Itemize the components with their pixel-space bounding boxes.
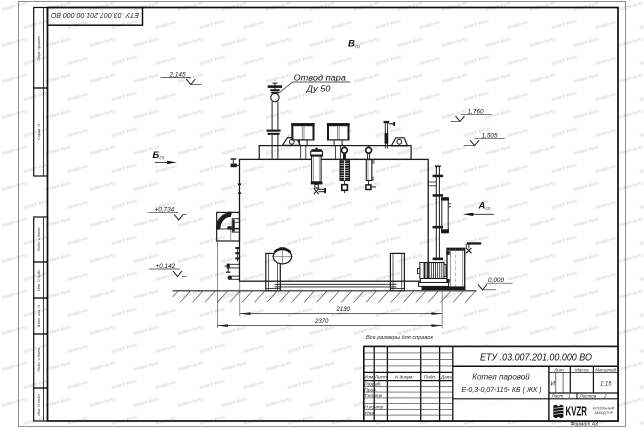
svg-text:Т.контр: Т.контр [364, 393, 382, 399]
svg-text:Масса: Масса [575, 367, 589, 372]
svg-text:ЕТУ .03.007.201.00.000 ВО: ЕТУ .03.007.201.00.000 ВО [480, 352, 592, 364]
svg-text:Листов: Листов [579, 393, 597, 398]
svg-text:Пров.: Пров. [364, 387, 377, 393]
svg-text:Лист: Лист [551, 393, 564, 398]
svg-text:Изм.: Изм. [365, 374, 375, 379]
svg-text:(1): (1) [355, 44, 361, 49]
svg-text:Подп.: Подп. [424, 374, 436, 379]
svg-text:N докум.: N докум. [395, 374, 414, 379]
svg-text:Б: Б [153, 150, 160, 161]
svg-text:В: В [348, 39, 355, 50]
svg-text:Разраб.: Разраб. [364, 382, 381, 388]
svg-text:ЕТУ .03.007.201.00.000 ВО: ЕТУ .03.007.201.00.000 ВО [51, 11, 139, 20]
svg-text:Е-0,3-0,07-115- КБ ( ЖК ): Е-0,3-0,07-115- КБ ( ЖК ) [461, 387, 541, 394]
svg-text:2370: 2370 [314, 319, 329, 325]
svg-text:Отвод пара: Отвод пара [294, 72, 347, 82]
svg-text:(1): (1) [160, 155, 166, 160]
svg-text:Справ. N: Справ. N [37, 124, 41, 140]
svg-text:Масштаб: Масштаб [595, 367, 616, 372]
svg-text:Инв. N подл.: Инв. N подл. [37, 393, 41, 415]
svg-text:Взам. инв. N: Взам. инв. N [37, 305, 41, 327]
svg-text:А: А [478, 200, 486, 211]
svg-text:Лит.: Лит. [553, 367, 565, 372]
svg-text:ЗАВОД РЗР: ЗАВОД РЗР [594, 411, 614, 415]
svg-text:И: И [551, 382, 556, 388]
svg-text:Подп. и дата: Подп. и дата [37, 228, 41, 252]
svg-text:Лист: Лист [374, 374, 387, 379]
svg-text:KVZR: KVZR [566, 403, 588, 418]
svg-text:Все размеры для справок: Все размеры для справок [366, 335, 433, 341]
svg-text:Котел паровой: Котел паровой [472, 373, 530, 382]
svg-text:2130: 2130 [336, 307, 351, 313]
svg-text:Ду 50: Ду 50 [305, 84, 330, 94]
svg-text:Дата: Дата [440, 374, 454, 379]
svg-text:Перв. примен.: Перв. примен. [37, 35, 41, 60]
svg-text:Подп. и дата: Подп. и дата [37, 348, 41, 372]
svg-text:1: 1 [568, 393, 571, 398]
svg-text:КОТЕЛЬНЫЙ: КОТЕЛЬНЫЙ [593, 407, 615, 411]
svg-text:Утв.: Утв. [364, 410, 375, 416]
svg-text:Инв. N дубл.: Инв. N дубл. [37, 269, 41, 291]
svg-text:1:15: 1:15 [600, 382, 612, 388]
svg-text:(1): (1) [486, 206, 492, 211]
svg-text:Н.контр: Н.контр [364, 405, 383, 411]
svg-text:Формат А3: Формат А3 [571, 422, 599, 428]
svg-text:2: 2 [603, 393, 607, 398]
